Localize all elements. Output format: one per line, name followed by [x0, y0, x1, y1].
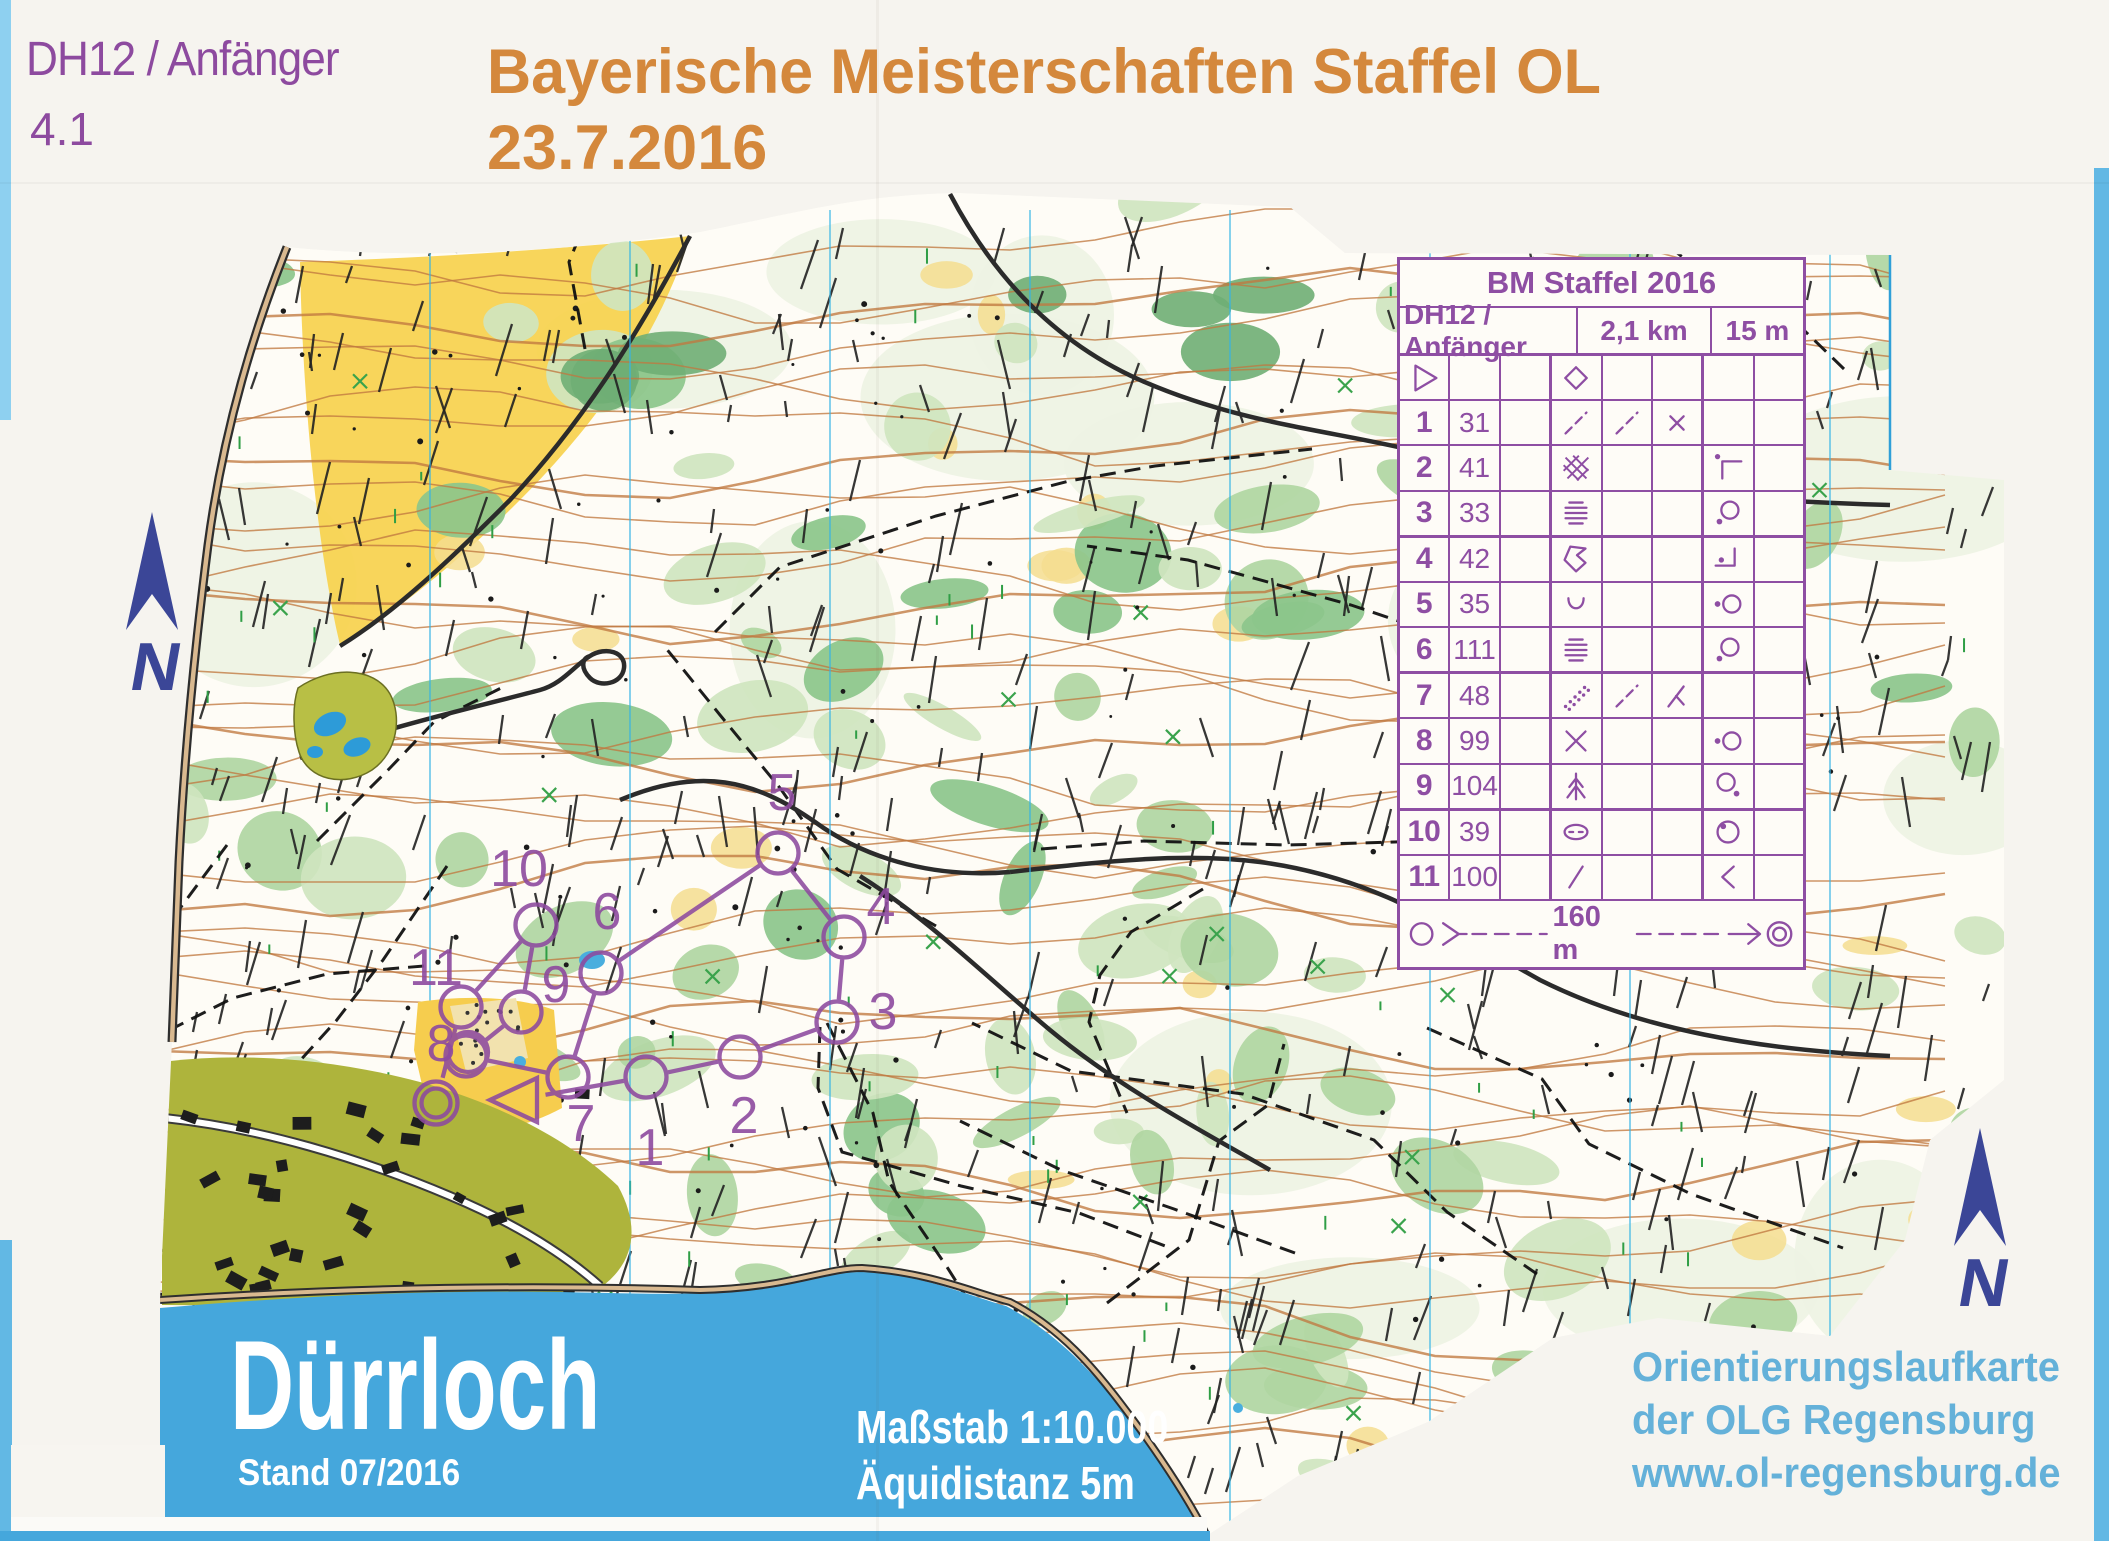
- card-empty-cell: [1501, 401, 1552, 444]
- card-cell: [1501, 356, 1552, 399]
- dotted-slash-icon: [1557, 677, 1595, 715]
- card-finish-row: 160 m: [1400, 901, 1803, 967]
- control-number: 3: [869, 983, 898, 1041]
- card-symbol-cell: [1653, 401, 1704, 444]
- card-course-info: DH12 / Anfänger 2,1 km 15 m: [1400, 308, 1803, 356]
- diamond-icon: [1557, 359, 1595, 397]
- card-cell: [1704, 356, 1754, 399]
- card-symbol-cell: [1653, 538, 1704, 581]
- card-empty-cell: [1755, 811, 1803, 854]
- stacked-lines-icon: [1557, 631, 1595, 669]
- card-control-row-6: 6111: [1400, 628, 1803, 674]
- control-number: 4: [867, 878, 896, 936]
- card-symbol-cell: [1704, 719, 1754, 762]
- card-symbol-cell: [1653, 856, 1704, 899]
- credits-line-2: der OLG Regensburg: [1632, 1393, 2061, 1446]
- course-class-label: DH12 / Anfänger: [26, 32, 339, 87]
- north-arrow-icon: N: [1953, 1128, 2016, 1321]
- event-date: 23.7.2016: [487, 112, 767, 184]
- card-text-cell: 6: [1400, 628, 1450, 671]
- stacked-lines-icon: [1557, 494, 1595, 532]
- card-symbol-cell: [1552, 492, 1602, 535]
- card-empty-cell: [1755, 674, 1803, 717]
- cross-icon: [1557, 722, 1595, 760]
- card-cell: [1400, 356, 1450, 399]
- card-empty-cell: [1501, 538, 1552, 581]
- corner-dot-se-icon: [1709, 540, 1747, 578]
- control-number: 11: [409, 939, 463, 997]
- card-symbol-cell: [1704, 628, 1754, 671]
- card-empty-cell: [1501, 446, 1552, 489]
- circle-dot-sw-icon: [1709, 631, 1747, 669]
- card-symbol-cell: [1552, 538, 1602, 581]
- card-text-cell: 1: [1400, 401, 1450, 444]
- card-text-cell: 111: [1450, 628, 1500, 671]
- card-text-cell: 9: [1400, 765, 1450, 808]
- finish-funnel-right-icon: [1633, 914, 1797, 954]
- card-cell: [1552, 356, 1602, 399]
- card-symbol-cell: [1603, 401, 1653, 444]
- card-empty-cell: [1755, 765, 1803, 808]
- card-text-cell: 48: [1450, 674, 1500, 717]
- credits-line-1: Orientierungslaufkarte: [1632, 1340, 2061, 1393]
- card-empty-cell: [1755, 628, 1803, 671]
- card-course-length: 2,1 km: [1578, 308, 1712, 353]
- card-empty-cell: [1755, 583, 1803, 626]
- card-symbol-cell: [1552, 583, 1602, 626]
- card-course-class: DH12 / Anfänger: [1400, 308, 1578, 353]
- card-control-row-8: 899: [1400, 719, 1803, 764]
- card-symbol-cell: [1603, 811, 1653, 854]
- legend-white-notch: [11, 1445, 165, 1517]
- card-symbol-cell: [1653, 765, 1704, 808]
- spruce-tree-icon: [1557, 767, 1595, 805]
- card-text-cell: 33: [1450, 492, 1500, 535]
- card-empty-cell: [1755, 401, 1803, 444]
- card-control-row-1: 131: [1400, 401, 1803, 446]
- circle-dot-w-icon: [1709, 585, 1747, 623]
- card-empty-cell: [1501, 811, 1552, 854]
- card-empty-cell: [1755, 856, 1803, 899]
- card-text-cell: 100: [1450, 856, 1500, 899]
- card-text-cell: 31: [1450, 401, 1500, 444]
- card-text-cell: 41: [1450, 446, 1500, 489]
- card-empty-cell: [1755, 492, 1803, 535]
- finish-funnel-left-icon: [1406, 914, 1553, 954]
- circle-dot-se-icon: [1709, 767, 1747, 805]
- card-empty-cell: [1755, 719, 1803, 762]
- card-cell: [1755, 356, 1803, 399]
- start-triangle-icon: [1405, 359, 1443, 397]
- card-symbol-cell: [1653, 583, 1704, 626]
- circle-dot-sw-icon: [1709, 494, 1747, 532]
- card-cell: [1450, 356, 1500, 399]
- map-revision-label: Stand 07/2016: [238, 1452, 460, 1494]
- small-cross-icon: [1658, 404, 1696, 442]
- card-symbol-cell: [1653, 719, 1704, 762]
- angle-left-icon: [1709, 858, 1747, 896]
- card-symbol-cell: [1552, 674, 1602, 717]
- circle-dot-inner-icon: [1709, 813, 1747, 851]
- dashed-slash-icon: [1608, 677, 1646, 715]
- knoll-ellipse-icon: [1557, 813, 1595, 851]
- card-symbol-cell: [1704, 492, 1754, 535]
- card-symbol-cell: [1552, 446, 1602, 489]
- card-cell: [1653, 356, 1704, 399]
- map-scale-label: Maßstab 1:10.000: [856, 1400, 1168, 1454]
- card-symbol-cell: [1653, 628, 1704, 671]
- dashed-slash-icon: [1608, 404, 1646, 442]
- card-empty-cell: [1501, 856, 1552, 899]
- broken-pentagon-icon: [1557, 540, 1595, 578]
- card-symbol-cell: [1704, 401, 1754, 444]
- card-start-row: [1400, 356, 1803, 401]
- card-text-cell: 5: [1400, 583, 1450, 626]
- card-text-cell: 99: [1450, 719, 1500, 762]
- card-symbol-cell: [1704, 538, 1754, 581]
- dashed-slash-icon: [1557, 404, 1595, 442]
- corner-dot-nw-icon: [1709, 449, 1747, 487]
- card-text-cell: 11: [1400, 856, 1450, 899]
- north-arrow-letter: N: [125, 628, 188, 704]
- control-number: 5: [768, 764, 797, 822]
- card-control-row-4: 442: [1400, 538, 1803, 583]
- card-text-cell: 8: [1400, 719, 1450, 762]
- credits-line-3: www.ol-regensburg.de: [1632, 1446, 2061, 1499]
- u-curve-icon: [1557, 585, 1595, 623]
- control-number: 10: [490, 840, 548, 898]
- card-symbol-cell: [1603, 538, 1653, 581]
- card-symbol-cell: [1603, 719, 1653, 762]
- card-symbol-cell: [1653, 674, 1704, 717]
- card-text-cell: 3: [1400, 492, 1450, 535]
- finish-distance-label: 160 m: [1553, 901, 1633, 967]
- card-symbol-cell: [1603, 628, 1653, 671]
- card-symbol-cell: [1704, 811, 1754, 854]
- card-symbol-cell: [1704, 674, 1754, 717]
- card-symbol-cell: [1704, 765, 1754, 808]
- event-title: Bayerische Meisterschaften Staffel OL: [487, 36, 1601, 108]
- card-text-cell: 7: [1400, 674, 1450, 717]
- thicket-hatch-icon: [1557, 449, 1595, 487]
- card-control-row-2: 241: [1400, 446, 1803, 491]
- card-symbol-cell: [1603, 446, 1653, 489]
- junction-y-icon: [1658, 677, 1696, 715]
- card-symbol-cell: [1603, 492, 1653, 535]
- map-name-title: Dürrloch: [230, 1312, 600, 1458]
- card-text-cell: 2: [1400, 446, 1450, 489]
- control-number: 1: [636, 1119, 665, 1177]
- card-control-row-9: 9104: [1400, 765, 1803, 811]
- card-symbol-cell: [1603, 674, 1653, 717]
- card-cell: [1603, 356, 1653, 399]
- card-symbol-cell: [1704, 446, 1754, 489]
- control-number: 7: [567, 1095, 596, 1153]
- circle-dot-w-icon: [1709, 722, 1747, 760]
- card-symbol-cell: [1552, 401, 1602, 444]
- control-description-card: BM Staffel 2016 DH12 / Anfänger 2,1 km 1…: [1397, 257, 1806, 970]
- card-empty-cell: [1755, 446, 1803, 489]
- card-text-cell: 35: [1450, 583, 1500, 626]
- card-empty-cell: [1755, 538, 1803, 581]
- card-symbol-cell: [1552, 719, 1602, 762]
- card-empty-cell: [1501, 674, 1552, 717]
- card-symbol-cell: [1653, 446, 1704, 489]
- control-number: 2: [730, 1087, 759, 1145]
- card-text-cell: 39: [1450, 811, 1500, 854]
- map-credits: Orientierungslaufkarte der OLG Regensbur…: [1632, 1340, 2061, 1499]
- card-symbol-cell: [1603, 583, 1653, 626]
- scanned-orienteering-map-sheet: N N 1234567891011 DH12 / Anfänger 4.1 Ba…: [0, 0, 2109, 1541]
- card-control-row-7: 748: [1400, 674, 1803, 719]
- card-text-cell: 4: [1400, 538, 1450, 581]
- card-symbol-cell: [1552, 856, 1602, 899]
- card-symbol-cell: [1704, 583, 1754, 626]
- card-symbol-cell: [1552, 765, 1602, 808]
- control-number: 9: [542, 956, 571, 1014]
- control-number: 6: [593, 883, 622, 941]
- card-symbol-cell: [1653, 492, 1704, 535]
- card-control-row-10: 1039: [1400, 811, 1803, 856]
- card-empty-cell: [1501, 719, 1552, 762]
- card-empty-cell: [1501, 765, 1552, 808]
- card-symbol-cell: [1653, 811, 1704, 854]
- card-text-cell: 10: [1400, 811, 1450, 854]
- card-symbol-cell: [1552, 811, 1602, 854]
- card-symbol-cell: [1603, 765, 1653, 808]
- card-course-climb: 15 m: [1712, 308, 1803, 353]
- relay-leg-label: 4.1: [30, 102, 94, 156]
- north-arrow-letter: N: [1953, 1244, 2016, 1320]
- card-control-row-5: 535: [1400, 583, 1803, 628]
- card-empty-cell: [1501, 583, 1552, 626]
- card-symbol-cell: [1552, 628, 1602, 671]
- card-empty-cell: [1501, 628, 1552, 671]
- card-control-row-3: 333: [1400, 492, 1803, 538]
- north-arrow-icon: N: [125, 512, 188, 705]
- slash-icon: [1557, 858, 1595, 896]
- card-text-cell: 42: [1450, 538, 1500, 581]
- card-control-row-11: 11100: [1400, 856, 1803, 901]
- card-symbol-cell: [1603, 856, 1653, 899]
- control-number: 8: [427, 1015, 456, 1073]
- card-text-cell: 104: [1450, 765, 1500, 808]
- card-symbol-cell: [1704, 856, 1754, 899]
- map-equidistance-label: Äquidistanz 5m: [856, 1456, 1135, 1510]
- card-empty-cell: [1501, 492, 1552, 535]
